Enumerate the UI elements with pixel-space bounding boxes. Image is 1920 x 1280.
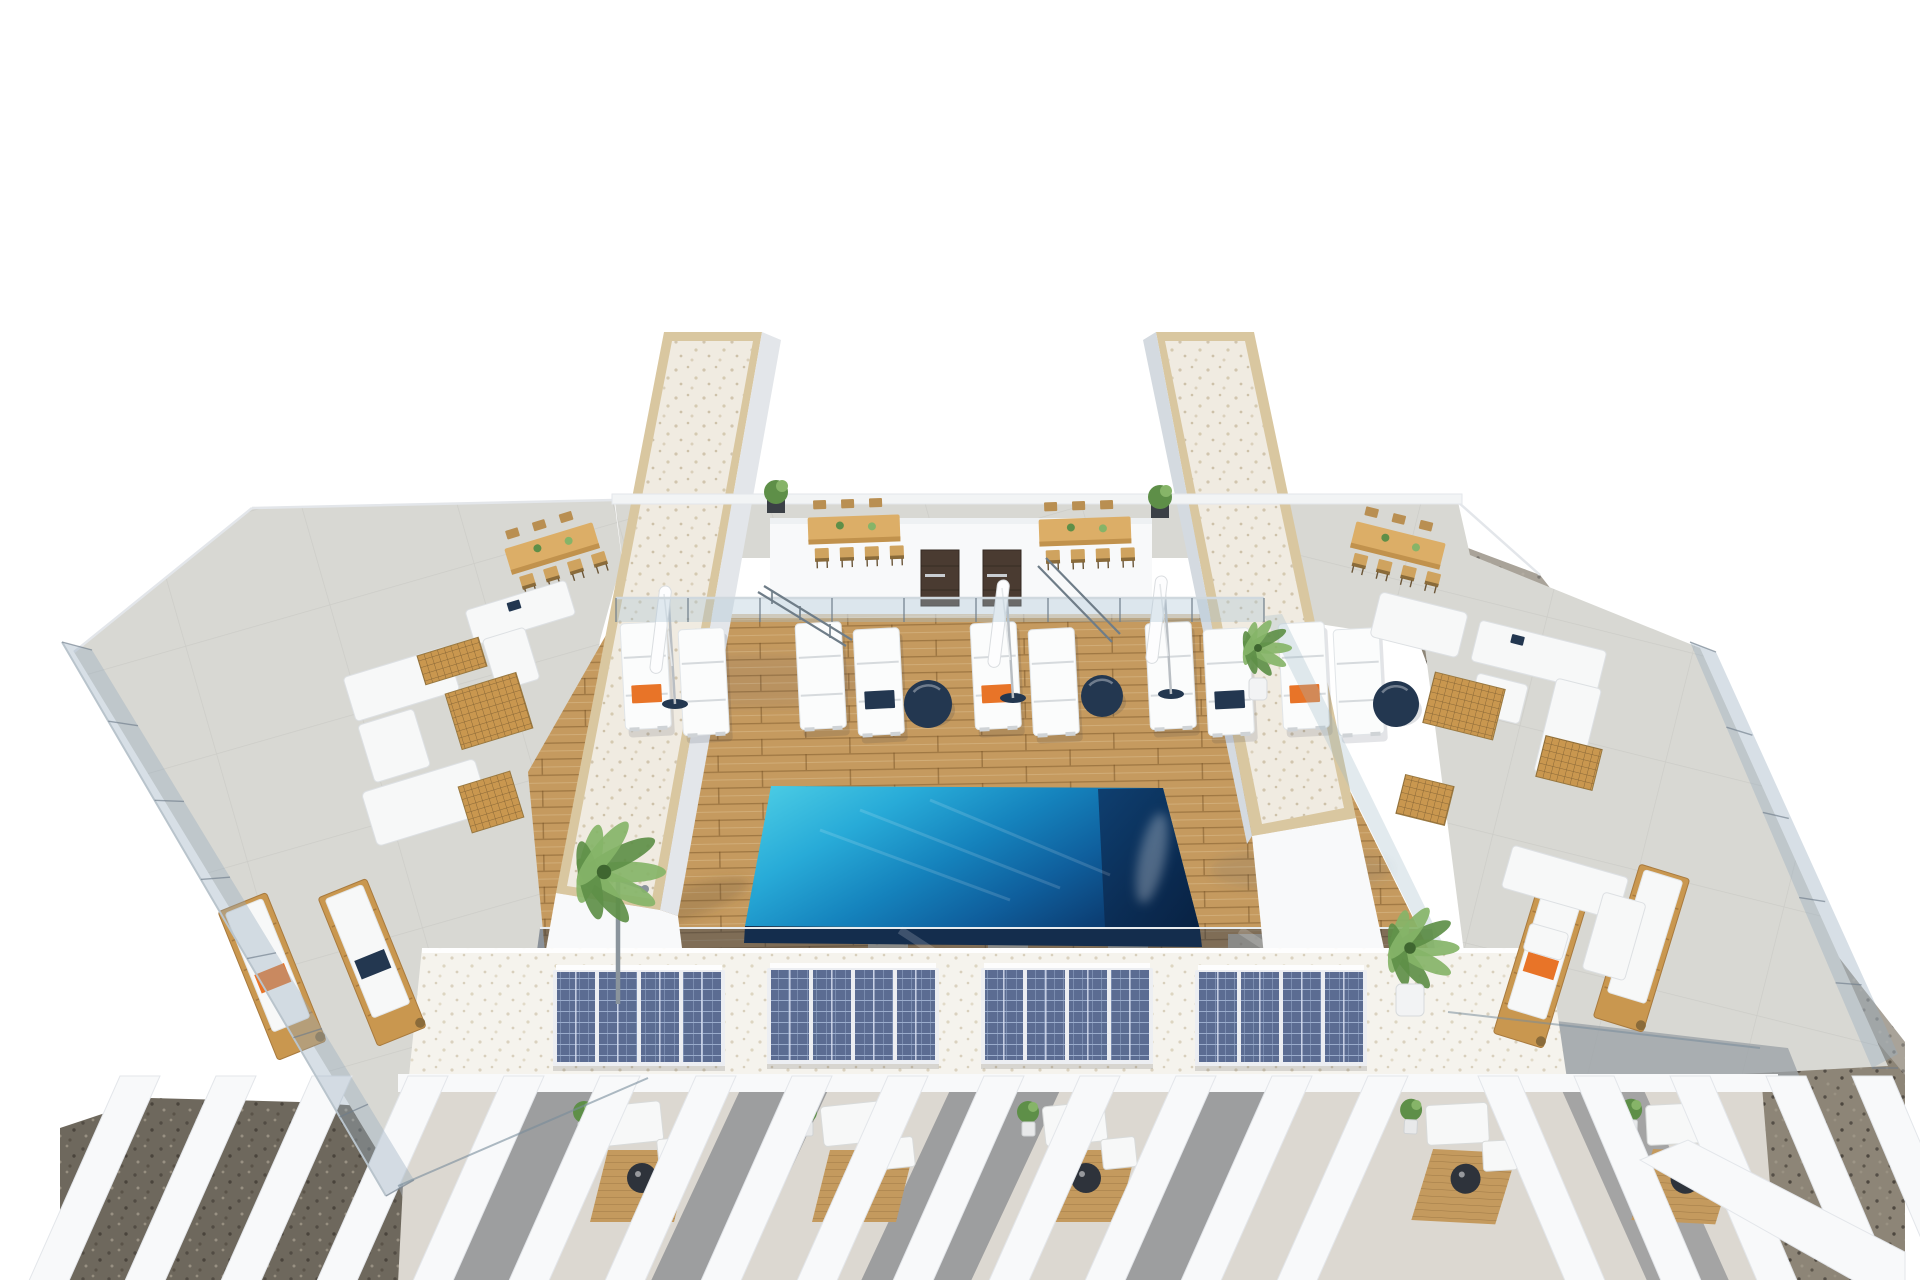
solar-panel-array (553, 965, 725, 1071)
deck-sun-lounger (1333, 627, 1388, 743)
rooftop-render: Aerial 3D render of a white residential … (0, 0, 1920, 1280)
deck-sun-lounger (620, 621, 675, 737)
solar-panel-array (767, 963, 939, 1069)
deck-sun-lounger (795, 621, 850, 737)
back-parapet (612, 494, 1462, 504)
walkway-planter (764, 480, 788, 513)
round-side-table (1373, 681, 1422, 727)
deck-back-glass-railing (616, 598, 1264, 622)
solar-panel-array (981, 963, 1153, 1069)
render-canvas (0, 0, 1920, 1280)
solar-panel-array (1195, 965, 1367, 1071)
deck-sun-lounger (853, 627, 908, 743)
deck-sun-lounger (1028, 627, 1083, 743)
deck-sun-lounger (678, 627, 733, 743)
walkway-planter (1148, 485, 1172, 518)
